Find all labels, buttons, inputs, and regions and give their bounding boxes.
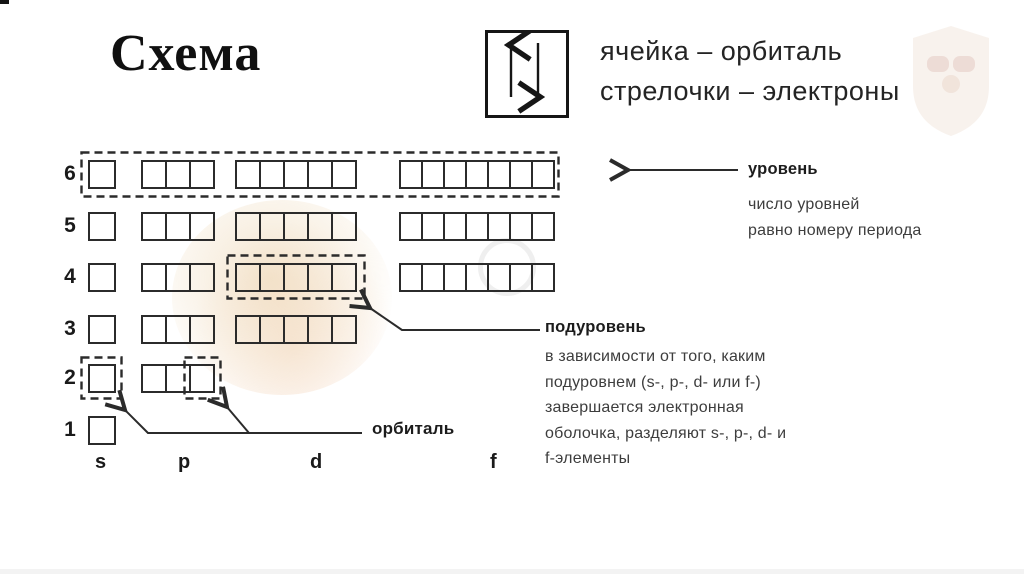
level-number-3: 3 <box>56 317 84 341</box>
orbital-cell <box>531 212 555 241</box>
orbital-arrow <box>112 398 368 440</box>
level-2-p3-dashed-outline <box>183 356 222 400</box>
orbital-cell <box>487 212 511 241</box>
orbital-cell <box>465 263 489 292</box>
orbital-cell <box>399 212 423 241</box>
level-5-p-sublevel <box>141 212 215 241</box>
orbital-cell <box>307 212 333 241</box>
orbital-cell <box>531 263 555 292</box>
orbital-cell <box>509 263 533 292</box>
orbital-cell <box>443 212 467 241</box>
level-4-f-sublevel <box>399 263 555 292</box>
up-down-arrows-icon <box>488 33 566 115</box>
orbital-cell <box>141 315 167 344</box>
orbital-cell <box>399 263 423 292</box>
column-label-s: s <box>95 451 106 474</box>
orbital-cell <box>189 315 215 344</box>
column-label-p: p <box>178 451 190 474</box>
slide: Схема ячейка – орбиталь стрелочки – элек… <box>0 0 1024 574</box>
level-label: уровень <box>748 160 818 179</box>
orbital-cell <box>141 263 167 292</box>
level-6-dashed-outline <box>80 151 560 198</box>
orbital-cell <box>189 263 215 292</box>
orbital-cell <box>421 263 445 292</box>
orbital-cell <box>165 263 191 292</box>
orbital-cell <box>141 212 167 241</box>
level-arrow <box>618 156 744 184</box>
legend-text: ячейка – орбиталь стрелочки – электроны <box>600 31 900 111</box>
orbital-cell <box>307 315 333 344</box>
page-title: Схема <box>110 24 261 83</box>
orbital-cell <box>165 315 191 344</box>
orbital-cell <box>259 315 285 344</box>
orbital-cell <box>331 212 357 241</box>
column-label-f: f <box>490 451 497 474</box>
orbital-cell <box>165 212 191 241</box>
orbital-label: орбиталь <box>372 419 454 439</box>
orbital-cell <box>487 263 511 292</box>
level-3-s-sublevel <box>88 315 116 344</box>
bottom-edge-strip <box>0 569 1024 574</box>
level-4-p-sublevel <box>141 263 215 292</box>
level-5-f-sublevel <box>399 212 555 241</box>
orbital-cell <box>259 212 285 241</box>
orbital-cell <box>88 263 116 292</box>
legend-line-cell: ячейка – орбиталь <box>600 31 900 71</box>
top-edge-mark <box>0 0 9 4</box>
orbital-cell <box>235 212 261 241</box>
sublevel-label: подуровень <box>545 318 646 337</box>
level-4-s-sublevel <box>88 263 116 292</box>
level-5-s-sublevel <box>88 212 116 241</box>
orbital-cell <box>283 315 309 344</box>
level-number-5: 5 <box>56 214 84 238</box>
orbital-cell <box>88 315 116 344</box>
orbital-cell <box>465 212 489 241</box>
level-3-d-sublevel <box>235 315 357 344</box>
level-3-p-sublevel <box>141 315 215 344</box>
level-number-1: 1 <box>56 418 84 442</box>
orbital-cell <box>283 212 309 241</box>
orbital-cell <box>509 212 533 241</box>
orbital-cell <box>141 364 167 393</box>
orbital-cell <box>421 212 445 241</box>
orbital-cell <box>443 263 467 292</box>
sublevel-arrow <box>358 296 544 338</box>
orbital-cell <box>331 315 357 344</box>
column-label-d: d <box>310 451 322 474</box>
level-note: число уровней равно номеру периода <box>748 192 921 243</box>
orbital-cell-example-box <box>485 30 569 118</box>
orbital-cell <box>189 212 215 241</box>
level-4-d-dashed-outline <box>226 254 366 300</box>
level-5-d-sublevel <box>235 212 357 241</box>
legend-line-arrows: стрелочки – электроны <box>600 71 900 111</box>
orbital-cell <box>235 315 261 344</box>
level-number-4: 4 <box>56 265 84 289</box>
orbital-cell <box>88 212 116 241</box>
level-2-s-dashed-outline <box>80 356 123 400</box>
sublevel-note: в зависимости от того, каким подуровнем … <box>545 344 786 472</box>
watermark-shield-icon <box>903 22 999 140</box>
